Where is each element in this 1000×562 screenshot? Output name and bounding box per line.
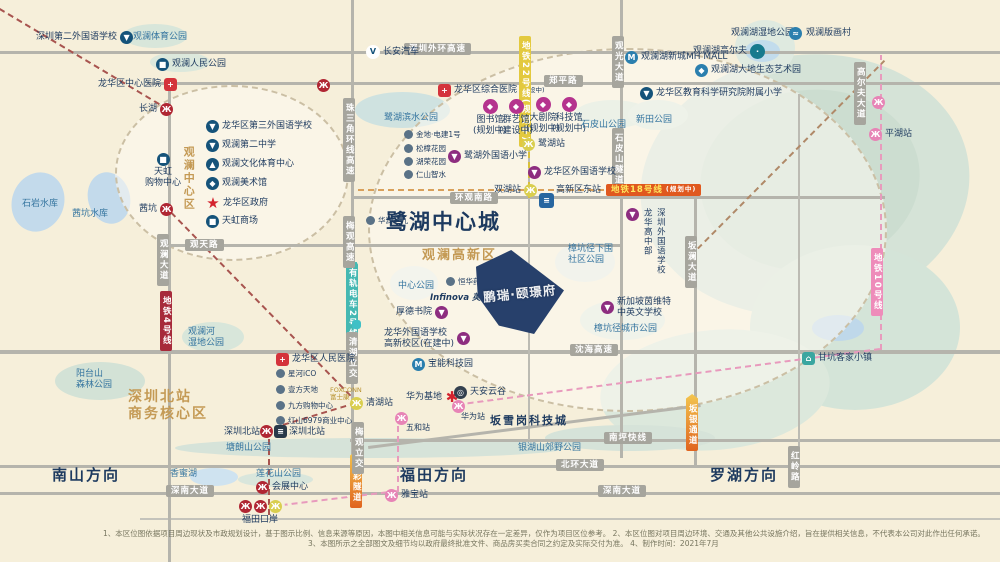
transit-metro-line4-label: 地铁4号线 bbox=[161, 296, 171, 346]
poi-shenzhen-2nd-foreign-school-label: 深圳第二外国语学校 bbox=[36, 32, 117, 43]
poi-longhua-people-hospital: +龙华区人民医院 bbox=[276, 353, 355, 366]
road-pearl-delta-ring-expressway-label: 珠三角环线高速 bbox=[344, 103, 354, 177]
label-zhangkengjing-city-park: 樟坑径城市公园 bbox=[594, 324, 657, 335]
poi-songzhang-garden: 松樟花园 bbox=[404, 144, 446, 153]
house-icon: ⌂ bbox=[802, 352, 815, 365]
road-golf-avenue: 高尔夫大道 bbox=[854, 62, 866, 125]
culture-icon: ◆ bbox=[509, 99, 524, 114]
metro-red-icon: Ж bbox=[254, 500, 267, 513]
label-lianhuashan-park-label: 莲花山公园 bbox=[256, 469, 301, 480]
label-shenzhen-north-2-label: 深圳北站 bbox=[289, 427, 325, 438]
road-line bbox=[350, 439, 1000, 442]
label-shiyan-reservoir: 石岩水库 bbox=[22, 199, 58, 210]
station-pinghu-label: 平湖站 bbox=[885, 129, 912, 140]
station-wuhe: 五和站 bbox=[406, 423, 430, 433]
poi-guanlan-art-museum: ◆观澜美术馆 bbox=[206, 177, 267, 190]
poi-shenzhen-foreign-school-longhua-label: 深圳外国语学校 bbox=[655, 208, 665, 275]
poi-shenzhen-foreign-school-longhua: ▼龙华高中部深圳外国语学校 bbox=[626, 208, 665, 275]
school-purple-icon: ▼ bbox=[448, 150, 461, 163]
road-beihuan-avenue: 北环大道 bbox=[556, 459, 604, 471]
poi-invictus-school: ▼新加坡茵维特 中英文学校 bbox=[601, 297, 671, 319]
area-futian-direction-label: 福田方向 bbox=[400, 466, 468, 484]
label-zhangkengjing-xiawei-park: 樟坑径下围 社区公园 bbox=[568, 244, 613, 266]
poi-mission-hills-art-park-label: 观澜湖大地生态艺术园 bbox=[711, 65, 801, 76]
poi-guanlan-no2-middle-school-label: 观澜第二中学 bbox=[222, 140, 276, 151]
road-zhengping-road-label: 郑平路 bbox=[549, 76, 578, 86]
station-gaoxinqu-east-icon: ≡ bbox=[539, 193, 554, 208]
label-tanglangshan-park-label: 塘朗山公园 bbox=[226, 443, 271, 454]
station-convention-center-label: 会展中心 bbox=[272, 482, 308, 493]
station-gaoxinqu-east-label: 高新区东站 bbox=[556, 185, 601, 196]
road-nanping-expressway: 南坪快线 bbox=[604, 432, 652, 444]
station-unnamed-line4: Ж bbox=[317, 79, 330, 92]
label-guanlan-river-wetland-park-label: 观澜河 湿地公园 bbox=[188, 327, 224, 349]
label-shiyan-reservoir-label: 石岩水库 bbox=[22, 199, 58, 210]
poi-jiufang-mall-label: 九方购物中心 bbox=[288, 401, 333, 410]
label-yinhushan-country-park: 银湖山郊野公园 bbox=[518, 443, 581, 454]
label-yangtaishan-forest-park-label: 阳台山 森林公园 bbox=[76, 369, 112, 391]
art-icon: ◆ bbox=[695, 64, 708, 77]
poi-jindian-community: 金地·电建1号 bbox=[404, 130, 461, 139]
poi-tianan-cloud-valley: ◎天安云谷 bbox=[454, 386, 506, 399]
road-pearl-delta-ring-expressway: 珠三角环线高速 bbox=[343, 98, 355, 182]
label-yinhushan-country-park-label: 银湖山郊野公园 bbox=[518, 443, 581, 454]
road-line bbox=[168, 244, 623, 247]
wetland-icon: ≈ bbox=[789, 27, 802, 40]
metro-pink-icon: Ж bbox=[385, 489, 398, 502]
poi-mission-hills-mh-mall: M观澜湖新城MH MALL bbox=[625, 51, 727, 64]
road-shennan-avenue-east: 深南大道 bbox=[598, 485, 646, 497]
transit-metro-line10: 地铁10号线 bbox=[871, 248, 883, 316]
road-hongling-road-label: 红岭路 bbox=[789, 451, 799, 483]
transit-metro-line18-planned-label: (规划中) bbox=[666, 186, 696, 194]
metro-red-icon: Ж bbox=[160, 103, 173, 116]
station-futian-checkpoint-2: Ж bbox=[254, 500, 267, 513]
school-purple-icon: ▼ bbox=[626, 208, 639, 221]
station-xikeng-label: 茜坑 bbox=[139, 204, 157, 215]
project-name: 鹏瑞·颐璟府 bbox=[483, 279, 558, 306]
poi-baoneng-tech-park: M宝能科技园 bbox=[412, 358, 473, 371]
area-luohu-direction-label: 罗湖方向 bbox=[710, 466, 778, 484]
school-purple-icon: ▼ bbox=[435, 306, 448, 319]
company-icon bbox=[276, 385, 285, 394]
poi-baoneng-tech-park-label: 宝能科技园 bbox=[428, 359, 473, 370]
poi-longhua-3rd-foreign-school: ▼龙华区第三外国语学校 bbox=[206, 120, 312, 133]
label-futian-checkpoint: 福田口岸 bbox=[242, 515, 278, 526]
poi-luhu-foreign-language-primary-label: 鹭湖外国语小学 bbox=[464, 151, 527, 162]
station-shuanghu-label: 双湖站 bbox=[494, 185, 521, 196]
station-convention-center: Ж会展中心 bbox=[256, 481, 308, 494]
area-shenzhen-north-cbd-label: 深圳北站 商务核心区 bbox=[128, 389, 208, 423]
road-huanguan-south-road: 环观南路 bbox=[450, 192, 498, 204]
poi-luhu-foreign-language-primary: ▼鹭湖外国语小学 bbox=[448, 150, 527, 163]
road-guanguang-avenue: 观光大道 bbox=[612, 36, 624, 88]
metro-yellow-icon: Ж bbox=[524, 184, 537, 197]
road-line bbox=[0, 465, 1000, 468]
poi-longhua-central-hospital: 龙华区中心医院+ bbox=[98, 78, 177, 91]
road-nanping-expressway-label: 南坪快线 bbox=[609, 433, 647, 443]
poi-guanlan-culture-sports-center-label: 观澜文化体育中心 bbox=[222, 159, 294, 170]
poi-rainbow-mall-label: 天虹商场 bbox=[222, 216, 258, 227]
metro-red-icon: Ж bbox=[260, 425, 273, 438]
road-huanguan-south-road-label: 环观南路 bbox=[455, 193, 493, 203]
road-guantian-road: 观天路 bbox=[185, 239, 224, 251]
poi-china-resources-999: 华润三九 bbox=[366, 216, 408, 225]
station-gaoxinqu-east: 高新区东站 bbox=[556, 185, 601, 196]
label-luhu-waterfront-park: 鹭湖滨水公园 bbox=[384, 113, 438, 124]
poi-guanlan-art-museum-label: 观澜美术馆 bbox=[222, 178, 267, 189]
road-guanguang-avenue-label: 观光大道 bbox=[613, 41, 623, 83]
poi-longhua-foreign-gaoxin-campus: 龙华外国语学校 高新校区(在建中)▼ bbox=[384, 328, 470, 350]
station-shenzhen-north-metro: Ж bbox=[260, 425, 273, 438]
poi-galaxy-ico-label: 星河iCO bbox=[288, 369, 316, 378]
label-shipishan-park: 石皮山公园 bbox=[581, 120, 626, 131]
poi-longhua-3rd-foreign-school-label: 龙华区第三外国语学校 bbox=[222, 121, 312, 132]
company-icon bbox=[404, 144, 413, 153]
label-lianhuashan-park: 莲花山公园 bbox=[256, 469, 301, 480]
train-icon: ≡ bbox=[274, 425, 287, 438]
label-guanlan-print-village: 观澜版画村 bbox=[806, 28, 851, 39]
road-line bbox=[0, 492, 1000, 495]
metro-pink-icon: Ж bbox=[869, 128, 882, 141]
label-zhangkengjing-xiawei-park-label: 樟坑径下围 社区公园 bbox=[568, 244, 613, 266]
poi-longhua-foreign-language-school-label: 龙华区外国语学校 bbox=[544, 167, 616, 178]
transit-metro-line18-planned: 地铁18号线(规划中) bbox=[606, 184, 701, 196]
poi-renshanzhishui-label: 仁山智水 bbox=[416, 170, 446, 179]
road-shennan-avenue-west: 深南大道 bbox=[166, 485, 214, 497]
road-banlan-avenue: 坂澜大道 bbox=[685, 236, 697, 288]
poi-changan-auto-label: 长安汽车 bbox=[383, 47, 419, 58]
road-guantian-road-label: 观天路 bbox=[190, 240, 219, 250]
note-line-2-label: 3、本图所示之全部图文及细节均以政府最终批准文件、商品房买卖合同之约定及实际交付… bbox=[308, 539, 719, 548]
poi-galaxy-ico: 星河iCO bbox=[276, 369, 316, 378]
company-icon bbox=[366, 216, 375, 225]
road-meiguan-interchange-label: 梅观立交 bbox=[353, 427, 363, 469]
road-shenhai-expressway-label: 沈海高速 bbox=[575, 345, 613, 355]
label-tanglangshan-park: 塘朗山公园 bbox=[226, 443, 271, 454]
poi-longhua-edu-research-primary-school-label: 龙华区教育科学研究院附属小学 bbox=[656, 88, 782, 99]
road-guanlan-avenue: 观澜大道 bbox=[157, 234, 169, 286]
poi-hongshan-6979-label: 红山6979商业中心 bbox=[288, 416, 352, 425]
station-luhu-label: 鹭湖站 bbox=[538, 139, 565, 150]
station-luhu: Ж鹭湖站 bbox=[522, 138, 565, 151]
park-b-icon: ■ bbox=[156, 58, 169, 71]
road-meiguan-expressway: 梅观高速 bbox=[343, 216, 355, 268]
poi-renshanzhishui: 仁山智水 bbox=[404, 170, 446, 179]
poi-longhua-people-hospital-label: 龙华区人民医院 bbox=[292, 354, 355, 365]
road-hongling-road: 红岭路 bbox=[788, 446, 800, 488]
metro-red-icon: Ж bbox=[160, 203, 173, 216]
road-golf-avenue-label: 高尔夫大道 bbox=[855, 67, 865, 120]
label-shenzhen-north-2: 深圳北站 bbox=[289, 427, 325, 438]
poi-gankeng-hakka-town-label: 甘坑客家小镇 bbox=[818, 353, 872, 364]
area-guanlan-hitech-zone: 观澜高新区 bbox=[422, 248, 497, 264]
icon-wetland: ≈ bbox=[789, 27, 802, 40]
area-guanlan-center-label: 观澜中心区 bbox=[182, 146, 195, 211]
school-purple-icon: ▼ bbox=[601, 301, 614, 314]
area-guanlan-hitech-zone-label: 观澜高新区 bbox=[422, 248, 497, 264]
tram-icon bbox=[352, 320, 361, 329]
poi-yifang-tiandi: 壹方天地 bbox=[276, 385, 318, 394]
poi-guanlan-culture-sports-center: ▲观澜文化体育中心 bbox=[206, 158, 294, 171]
road-guanlan-avenue-label: 观澜大道 bbox=[158, 239, 168, 281]
road-shennan-avenue-west-label: 深南大道 bbox=[171, 486, 209, 496]
area-futian-direction: 福田方向 bbox=[400, 466, 468, 484]
road-meiguan-interchange: 梅观立交 bbox=[352, 422, 364, 474]
label-central-park-label: 中心公园 bbox=[398, 281, 434, 292]
hospital-icon: + bbox=[438, 84, 451, 97]
hospital-icon: + bbox=[276, 353, 289, 366]
label-luhu-waterfront-park-label: 鹭湖滨水公园 bbox=[384, 113, 438, 124]
poi-shenzhen-2nd-foreign-school: 深圳第二外国语学校▼ bbox=[36, 31, 133, 44]
company-icon bbox=[446, 277, 455, 286]
label-xintian-park-label: 新田公园 bbox=[636, 115, 672, 126]
label-mission-hills-wetland-park: 观澜湖湿地公园 bbox=[731, 28, 794, 39]
location-map: 鹏瑞·颐璟府 深圳第二外国语学校▼观澜体育公园■观澜人民公园龙华区中心医院+Ж长… bbox=[0, 0, 1000, 562]
poi-rainbow-shopping-center-label: 天虹 购物中心 bbox=[145, 167, 181, 189]
mall-icon: ■ bbox=[206, 215, 219, 228]
station-shuanghu: 双湖站Ж bbox=[494, 184, 537, 197]
road-line bbox=[397, 420, 399, 492]
label-yangtaishan-forest-park: 阳台山 森林公园 bbox=[76, 369, 112, 391]
school-purple-icon: ▼ bbox=[528, 166, 541, 179]
poi-yifang-tiandi-label: 壹方天地 bbox=[288, 385, 318, 394]
label-xintian-park: 新田公园 bbox=[636, 115, 672, 126]
school-blue-icon: ▼ bbox=[120, 31, 133, 44]
station-xikeng: 茜坑Ж bbox=[139, 203, 173, 216]
road-shenhai-expressway: 沈海高速 bbox=[570, 344, 618, 356]
metro-red-icon: Ж bbox=[239, 500, 252, 513]
poi-longhua-foreign-language-school: ▼龙华区外国语学校 bbox=[528, 166, 616, 179]
area-nanshan-direction-label: 南山方向 bbox=[52, 466, 120, 484]
metro-yellow-icon: Ж bbox=[269, 500, 282, 513]
poi-longhua-district-government-label: 龙华区政府 bbox=[223, 198, 268, 209]
poi-houde-academy: 厚德书院▼ bbox=[396, 306, 448, 319]
poi-guanlan-people-park: ■观澜人民公园 bbox=[156, 58, 226, 71]
station-yabao: Ж雅宝站 bbox=[385, 489, 428, 502]
cloud-icon: ◎ bbox=[454, 386, 467, 399]
road-line bbox=[798, 94, 800, 468]
mh-icon: M bbox=[412, 358, 425, 371]
company-icon bbox=[404, 157, 413, 166]
rail-blue-icon: ≡ bbox=[539, 193, 554, 208]
road-banyin-channel: 坂银通道 bbox=[686, 394, 698, 451]
company-icon bbox=[276, 401, 285, 410]
label-xiangmi-lake: 香蜜湖 bbox=[170, 469, 197, 480]
station-futian-checkpoint-1: Ж bbox=[239, 500, 252, 513]
station-qinghu-label: 清湖站 bbox=[366, 398, 393, 409]
transit-metro-line10-label: 地铁10号线 bbox=[872, 253, 882, 311]
poi-songzhang-garden-label: 松樟花园 bbox=[416, 144, 446, 153]
road-line bbox=[0, 51, 1000, 54]
changan-icon: V bbox=[366, 45, 380, 59]
station-huawei-label: 华为站 bbox=[461, 412, 485, 422]
poi-longhua-general-hospital-label: 龙华区综合医院 bbox=[454, 85, 517, 96]
mall-icon: ■ bbox=[157, 153, 170, 166]
station-pinghu: Ж平湖站 bbox=[869, 128, 912, 141]
station-tram bbox=[352, 320, 361, 329]
station-wuhe-label: 五和站 bbox=[406, 423, 430, 433]
area-guanlan-center: 观澜中心区 bbox=[181, 141, 196, 216]
road-line bbox=[353, 196, 885, 199]
road-banyin-channel-label: 坂银通道 bbox=[687, 404, 697, 446]
road-shipishan-tunnel: 石皮山隧道 bbox=[612, 128, 624, 191]
poi-gankeng-hakka-town: ⌂甘坑客家小镇 bbox=[802, 352, 872, 365]
poi-longhua-foreign-gaoxin-campus-label: 龙华外国语学校 高新校区(在建中) bbox=[384, 328, 454, 350]
poi-houde-academy-label: 厚德书院 bbox=[396, 307, 432, 318]
culture-icon: ◆ bbox=[562, 97, 577, 112]
company-icon bbox=[276, 369, 285, 378]
note-line-1-label: 1、本区位图依据项目周边现状及市政规划设计，基于图示比例、信息来源等原因，本图中… bbox=[103, 529, 985, 538]
area-banxuegang-tech-city-label: 坂雪岗科技城 bbox=[490, 414, 568, 427]
label-xiangmi-lake-label: 香蜜湖 bbox=[170, 469, 197, 480]
label-shipishan-park-label: 石皮山公园 bbox=[581, 120, 626, 131]
poi-jindian-community-label: 金地·电建1号 bbox=[416, 130, 461, 139]
station-shenzhen-north-rail: ≡ bbox=[274, 425, 287, 438]
metro-pink-icon: Ж bbox=[872, 96, 885, 109]
area-shenzhen-north-cbd: 深圳北站 商务核心区 bbox=[128, 389, 208, 423]
company-icon bbox=[276, 416, 285, 425]
metro-red-icon: Ж bbox=[256, 481, 269, 494]
label-central-park: 中心公园 bbox=[398, 281, 434, 292]
road-line bbox=[0, 8, 168, 110]
road-zhengping-road: 郑平路 bbox=[544, 75, 583, 87]
transit-metro-line18-planned-label: 地铁18号线 bbox=[611, 185, 663, 195]
label-futian-checkpoint-label: 福田口岸 bbox=[242, 515, 278, 526]
school-blue-icon: ▼ bbox=[206, 120, 219, 133]
school-blue-icon: ▼ bbox=[206, 139, 219, 152]
label-xikeng-reservoir-label: 茜坑水库 bbox=[72, 209, 108, 220]
station-unnamed-line10: Ж bbox=[872, 96, 885, 109]
road-shennan-avenue-east-label: 深南大道 bbox=[603, 486, 641, 496]
poi-jiufang-mall: 九方购物中心 bbox=[276, 401, 333, 410]
poi-rainbow-mall: ■天虹商场 bbox=[206, 215, 258, 228]
station-yabao-label: 雅宝站 bbox=[401, 490, 428, 501]
poi-longhua-edu-research-primary-school: ▼龙华区教育科学研究院附属小学 bbox=[640, 87, 782, 100]
mh-icon: M bbox=[625, 51, 638, 64]
station-changhu-label: 长湖 bbox=[139, 104, 157, 115]
road-banlan-avenue-label: 坂澜大道 bbox=[686, 241, 696, 283]
school-blue-icon: ▼ bbox=[640, 87, 653, 100]
poi-china-resources-999-label: 华润三九 bbox=[378, 216, 408, 225]
star-icon: ★ bbox=[206, 196, 220, 210]
poi-hurong-garden-label: 湖荣花园 bbox=[416, 157, 446, 166]
label-shenzhen-north-1: 深圳北站 bbox=[224, 427, 260, 438]
label-guanlan-river-wetland-park: 观澜河 湿地公园 bbox=[188, 327, 224, 349]
company-icon bbox=[404, 130, 413, 139]
area-nanshan-direction: 南山方向 bbox=[52, 466, 120, 484]
poi-longhua-district-government: ★龙华区政府 bbox=[206, 196, 268, 210]
company-icon bbox=[404, 170, 413, 179]
terrain-blob bbox=[190, 468, 238, 486]
poi-guanlan-people-park-label: 观澜人民公园 bbox=[172, 59, 226, 70]
poi-longhua-central-hospital-label: 龙华区中心医院 bbox=[98, 79, 161, 90]
museum-icon: ◆ bbox=[206, 177, 219, 190]
poi-guanlan-sports-park: 观澜体育公园 bbox=[133, 32, 187, 43]
label-shenzhen-north-1-label: 深圳北站 bbox=[224, 427, 260, 438]
label-zhangkengjing-city-park-label: 樟坑径城市公园 bbox=[594, 324, 657, 335]
poi-hongshan-6979: 红山6979商业中心 bbox=[276, 416, 352, 425]
poi-invictus-school-label: 新加坡茵维特 中英文学校 bbox=[617, 297, 671, 319]
label-xikeng-reservoir: 茜坑水库 bbox=[72, 209, 108, 220]
poi-huawei-base-label: 华为基地 bbox=[406, 392, 442, 403]
station-futian-checkpoint-3: Ж bbox=[269, 500, 282, 513]
area-luohu-direction: 罗湖方向 bbox=[710, 466, 778, 484]
poi-tianan-cloud-valley-label: 天安云谷 bbox=[470, 387, 506, 398]
station-qinghu: Ж清湖站 bbox=[350, 397, 393, 410]
poi-mission-hills-mh-mall-label: 观澜湖新城MH MALL bbox=[641, 52, 727, 63]
poi-guanlan-no2-middle-school: ▼观澜第二中学 bbox=[206, 139, 276, 152]
road-meiguan-expressway-label: 梅观高速 bbox=[344, 221, 354, 263]
school-purple-icon: ▼ bbox=[457, 332, 470, 345]
poi-changan-auto: V长安汽车 bbox=[366, 45, 419, 59]
golf-icon: · bbox=[750, 44, 765, 59]
metro-red-icon: Ж bbox=[317, 79, 330, 92]
poi-hurong-garden: 湖荣花园 bbox=[404, 157, 446, 166]
note-line-2: 3、本图所示之全部图文及细节均以政府最终批准文件、商品房买卖合同之约定及实际交付… bbox=[308, 538, 719, 549]
label-mission-hills-wetland-park-label: 观澜湖湿地公园 bbox=[731, 28, 794, 39]
transit-metro-line4: 地铁4号线 bbox=[160, 291, 172, 351]
label-guanlan-print-village-label: 观澜版画村 bbox=[806, 28, 851, 39]
hospital-icon: + bbox=[164, 78, 177, 91]
poi-shenzhen-foreign-school-longhua-label: 龙华高中部 bbox=[642, 208, 652, 256]
station-changhu: 长湖Ж bbox=[139, 103, 173, 116]
metro-yellow-icon: Ж bbox=[350, 397, 363, 410]
poi-guanlan-sports-park-label: 观澜体育公园 bbox=[133, 32, 187, 43]
sports-icon: ▲ bbox=[206, 158, 219, 171]
station-huawei: 华为站 bbox=[461, 412, 485, 422]
area-banxuegang-tech-city: 坂雪岗科技城 bbox=[490, 414, 568, 427]
poi-mission-hills-art-park: ◆观澜湖大地生态艺术园 bbox=[695, 64, 801, 77]
road-beihuan-avenue-label: 北环大道 bbox=[561, 460, 599, 470]
